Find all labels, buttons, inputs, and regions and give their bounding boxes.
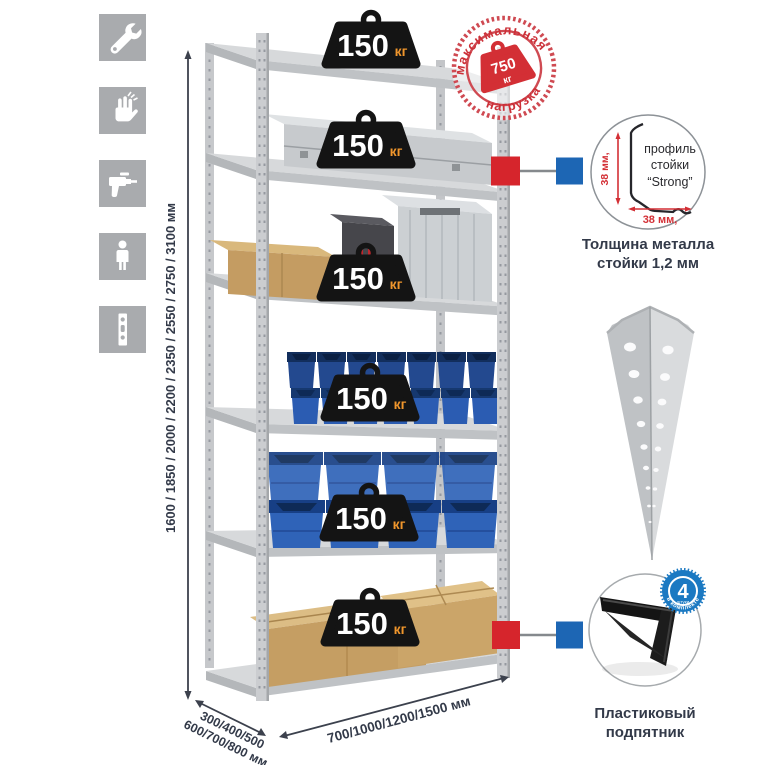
callout-red-square [491,157,520,186]
callout-red-square [492,621,520,649]
arrow-up-icon [185,50,192,59]
infographic-canvas: 1600 / 1850 / 2000 / 2200 / 2350 / 2550 … [0,0,765,765]
max-load-stamp: максимальная нагрузка 750 кг [439,3,569,133]
profile-label: стойки [651,158,689,172]
arrow-down-icon [185,691,192,700]
foot-caption: Пластиковый [594,705,695,722]
shelf-load-badge: 150 кг [326,13,416,65]
callout-blue-square [556,622,583,649]
profile-label: “Strong” [647,175,692,189]
svg-text:кг: кг [390,143,403,159]
svg-text:кг: кг [393,516,406,532]
profile-label: профиль [644,142,696,156]
svg-text:150: 150 [336,606,388,641]
scene: 1600 / 1850 / 2000 / 2200 / 2350 / 2550 … [0,0,765,765]
foot-detail: 4 штуки в комплекте Пластиковый подпятни… [589,569,705,741]
svg-text:150: 150 [337,28,389,63]
callout-top [491,157,583,186]
svg-text:кг: кг [395,43,408,59]
profile-caption: Толщина металла [582,236,715,253]
callout-bottom [492,621,583,649]
svg-text:150: 150 [336,381,388,416]
cardboard-box-small [210,240,336,301]
callout-blue-square [556,158,583,185]
svg-text:кг: кг [394,396,407,412]
profile-caption: стойки 1,2 мм [597,255,699,272]
foot-caption: подпятник [606,724,685,741]
svg-text:150: 150 [332,261,384,296]
svg-text:150: 150 [335,501,387,536]
profile-detail: 38 мм, 38 мм, профиль стойки “Strong” То… [582,115,715,272]
large-blue-bins-back-row [266,452,497,500]
shelf-load-badge: 150 кг [321,113,411,165]
corner-post-image [607,307,694,560]
height-dimension-label: 1600 / 1850 / 2000 / 2200 / 2350 / 2550 … [163,203,178,533]
badge-small-text: штуки [677,600,690,605]
svg-text:150: 150 [332,128,384,163]
profile-dim-vertical: 38 мм, [599,152,611,185]
svg-text:кг: кг [390,276,403,292]
svg-text:кг: кг [394,621,407,637]
height-dimension: 1600 / 1850 / 2000 / 2200 / 2350 / 2550 … [163,50,192,700]
profile-dim-horizontal: 38 мм, [643,214,678,226]
depth-dimension: 300/400/500 600/700/800 мм [182,700,277,765]
